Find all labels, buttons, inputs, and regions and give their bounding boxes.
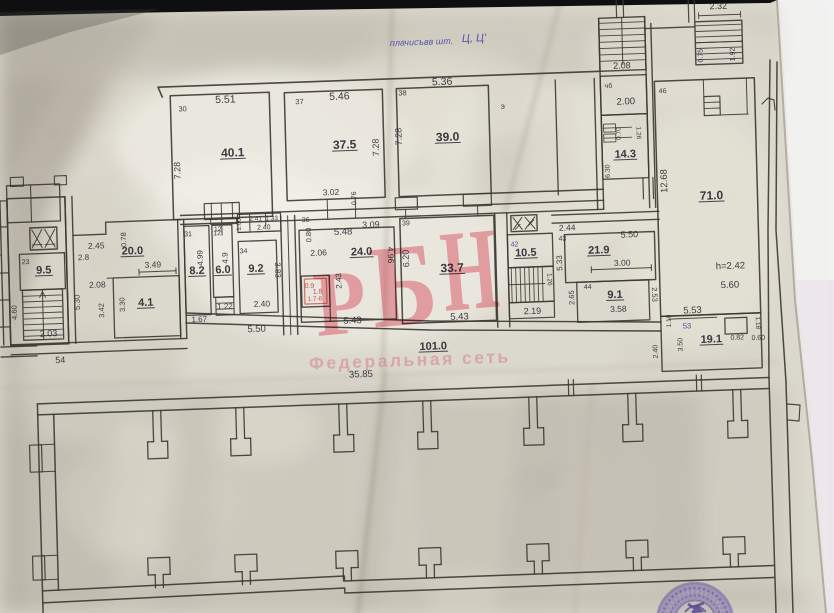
svg-text:2.44: 2.44 [559,222,576,233]
svg-text:1.00: 1.00 [236,218,243,231]
svg-text:54: 54 [55,355,65,365]
svg-text:5.53: 5.53 [683,305,702,317]
svg-text:44: 44 [584,284,592,291]
svg-text:э: э [501,102,505,111]
svg-text:1.33: 1.33 [265,215,278,222]
svg-text:7.28: 7.28 [172,162,183,180]
svg-text:7.28: 7.28 [393,128,404,146]
svg-text:53: 53 [683,321,692,330]
svg-text:0.80: 0.80 [304,228,314,243]
svg-text:2.08: 2.08 [89,279,106,290]
svg-text:6.30: 6.30 [604,164,611,178]
svg-text:h=2.42: h=2.42 [716,260,746,272]
svg-text:5.46: 5.46 [329,90,350,103]
svg-text:9.5: 9.5 [36,264,52,277]
svg-text:5.33: 5.33 [555,255,565,271]
svg-text:31: 31 [184,231,192,238]
svg-text:36: 36 [302,217,310,224]
svg-text:3.50: 3.50 [677,338,684,352]
svg-text:1.26: 1.26 [634,127,641,140]
svg-text:4.99: 4.99 [195,249,205,265]
svg-text:3.83: 3.83 [273,262,283,278]
svg-text:3.02: 3.02 [323,187,340,198]
svg-text:3.30: 3.30 [118,297,128,312]
svg-text:30: 30 [178,104,187,113]
svg-text:5.30: 5.30 [72,294,82,310]
svg-text:3.58: 3.58 [610,304,627,315]
svg-text:3.42: 3.42 [97,303,107,318]
svg-text:4.60: 4.60 [10,305,20,320]
svg-text:9.1: 9.1 [607,289,623,302]
svg-text:2.40: 2.40 [253,298,270,309]
svg-text:37: 37 [295,97,304,106]
svg-text:38: 38 [398,88,407,97]
svg-text:2.08: 2.08 [613,60,631,71]
svg-text:40.1: 40.1 [221,145,245,160]
svg-text:8.2: 8.2 [189,265,205,278]
svg-text:5.36: 5.36 [432,76,453,89]
svg-text:0.75: 0.75 [697,49,704,63]
svg-text:2.65: 2.65 [567,290,577,305]
svg-text:чб: чб [604,82,612,90]
svg-text:9.2: 9.2 [248,263,264,276]
svg-text:3.00: 3.00 [614,257,631,268]
svg-text:71.0: 71.0 [700,188,724,203]
svg-text:7.28: 7.28 [370,138,381,156]
svg-text:34: 34 [240,248,248,255]
svg-text:37.5: 37.5 [333,137,357,152]
svg-text:Н: Н [436,205,503,337]
svg-text:2.45: 2.45 [88,240,105,251]
svg-text:5.48: 5.48 [334,226,353,238]
svg-text:12.68: 12.68 [659,169,671,193]
svg-text:1.26: 1.26 [545,273,552,286]
svg-text:43: 43 [558,236,566,243]
svg-text:0.76: 0.76 [351,191,358,205]
svg-text:2.40: 2.40 [652,345,659,359]
svg-text:5.50: 5.50 [620,229,638,240]
svg-text:1.92: 1.92 [729,47,736,61]
svg-text:2.53: 2.53 [650,287,660,302]
svg-text:46: 46 [659,88,667,95]
svg-text:2.03: 2.03 [40,328,58,339]
svg-text:6.0: 6.0 [215,264,231,277]
svg-text:3.49: 3.49 [144,259,161,270]
svg-text:1.22: 1.22 [217,302,233,312]
svg-text:4.9: 4.9 [220,252,229,264]
svg-text:5.60: 5.60 [720,279,739,291]
svg-text:5.51: 5.51 [215,93,236,106]
svg-text:2.41: 2.41 [249,216,262,223]
svg-text:23: 23 [22,259,30,266]
svg-text:2.8: 2.8 [78,253,90,262]
svg-text:2.19: 2.19 [523,306,541,317]
svg-text:39.0: 39.0 [436,129,460,144]
svg-text:4.1: 4.1 [138,297,154,310]
svg-text:Б: Б [365,217,442,353]
svg-text:0.70: 0.70 [615,127,622,140]
svg-text:2.40: 2.40 [257,224,271,231]
svg-text:Р: Р [310,250,371,356]
svg-text:0.82: 0.82 [730,334,744,341]
svg-text:0.60: 0.60 [751,335,765,342]
svg-text:2.32: 2.32 [709,1,727,12]
svg-text:1.18: 1.18 [754,316,761,329]
svg-text:Ц, Цʹ: Ц, Цʹ [462,32,488,45]
svg-text:1.10: 1.10 [666,314,673,327]
svg-text:12: 12 [213,230,221,237]
svg-text:2.00: 2.00 [616,96,635,108]
